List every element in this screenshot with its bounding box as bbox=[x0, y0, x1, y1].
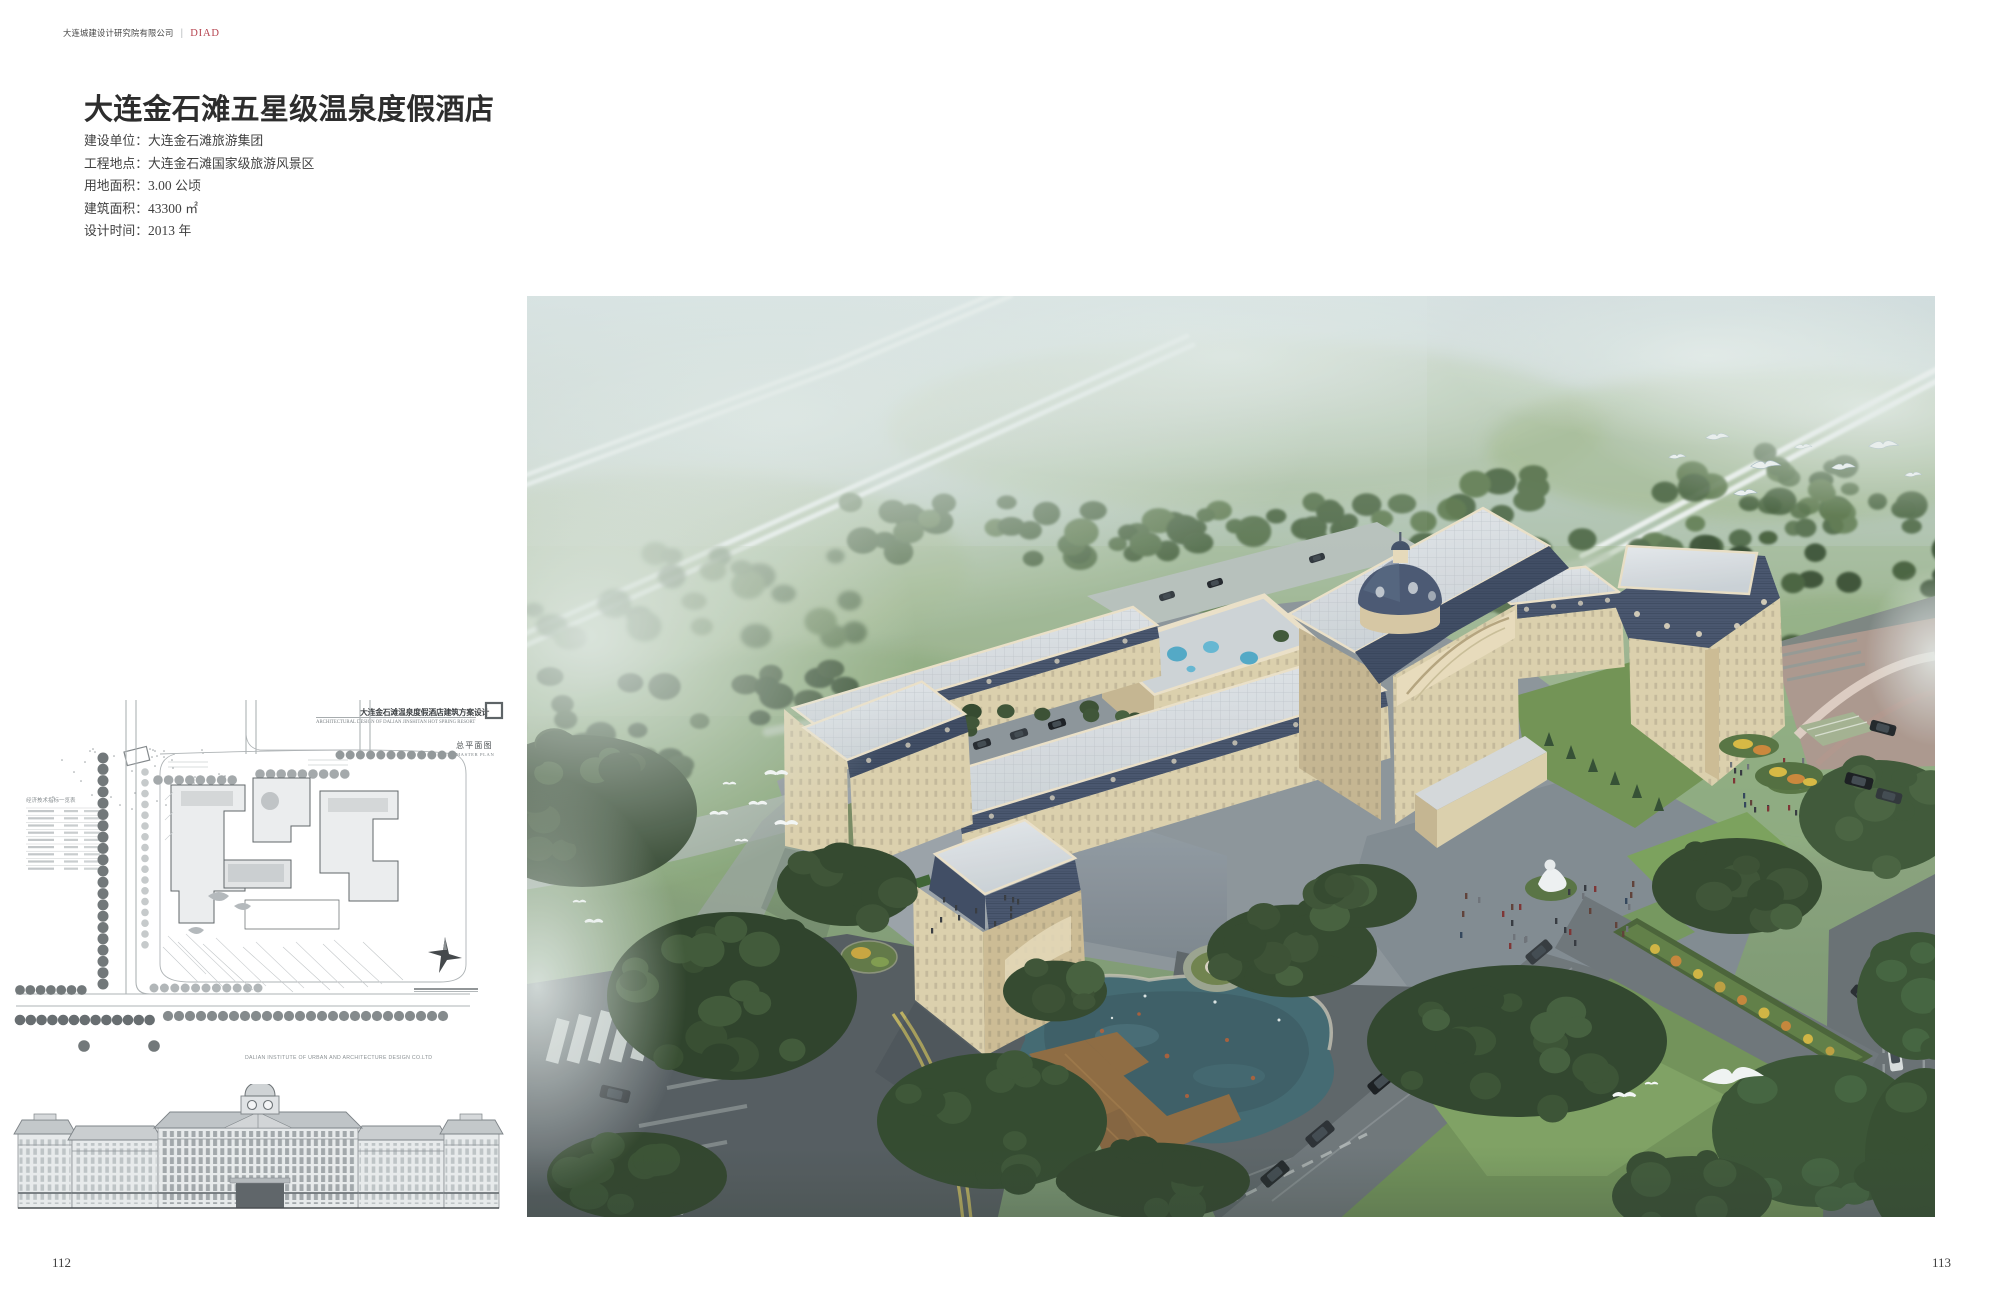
svg-text:MASTER PLAN: MASTER PLAN bbox=[456, 752, 494, 757]
svg-text:大连金石滩温泉度假酒店建筑方案设计: 大连金石滩温泉度假酒店建筑方案设计 bbox=[360, 707, 490, 717]
svg-text:ARCHITECTURAL DESIGN OF DAL: ARCHITECTURAL DESIGN OF DALIAN JINSHITAN… bbox=[316, 720, 475, 725]
svg-text:总平面图: 总平面图 bbox=[456, 740, 493, 750]
svg-text:DALIAN INSTITUTE OF URBAN: DALIAN INSTITUTE OF URBAN AND ARCHITECTU… bbox=[245, 1055, 432, 1061]
svg-text:经济技术指标一览表: 经济技术指标一览表 bbox=[26, 796, 76, 804]
